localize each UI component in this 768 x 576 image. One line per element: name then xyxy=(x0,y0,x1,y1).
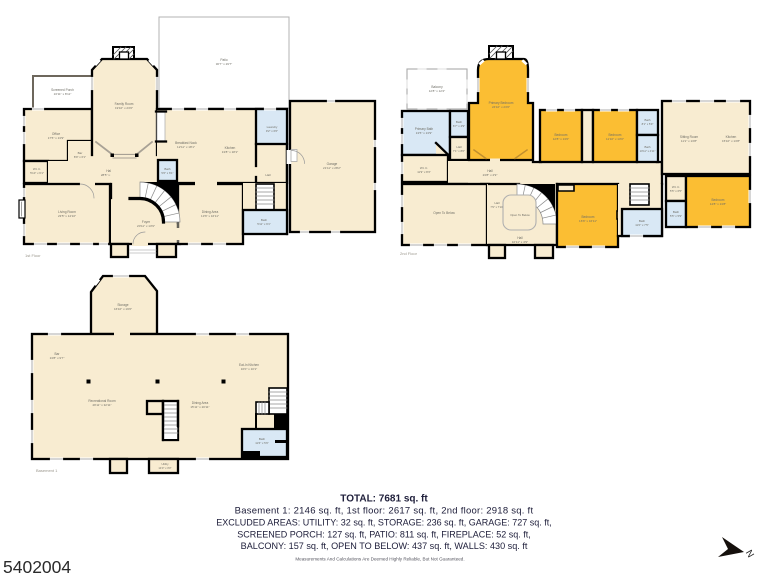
svg-text:20'11" x 13'9": 20'11" x 13'9" xyxy=(137,224,155,228)
svg-text:13'6" x 16'11": 13'6" x 16'11" xyxy=(201,214,219,218)
svg-text:11'1" x 13'8": 11'1" x 13'8" xyxy=(681,139,697,143)
svg-text:Measurements And Calculations: Measurements And Calculations Are Deemed… xyxy=(295,557,464,562)
svg-text:10'11" x 4'11": 10'11" x 4'11" xyxy=(640,149,656,153)
svg-text:Basement 1: 2146 sq. ft, 1st f: Basement 1: 2146 sq. ft, 1st floor: 2617… xyxy=(235,506,534,517)
svg-text:5'5" x 5'9": 5'5" x 5'9" xyxy=(670,214,682,218)
svg-text:Hall: Hall xyxy=(265,173,271,177)
svg-text:12'8" x 13'0": 12'8" x 13'0" xyxy=(553,137,569,141)
svg-text:23'8" x 4'9": 23'8" x 4'9" xyxy=(483,173,498,177)
svg-text:10'11" x 4'9": 10'11" x 4'9" xyxy=(512,240,528,244)
svg-text:9'2" x 6'6": 9'2" x 6'6" xyxy=(266,129,278,133)
svg-text:7'1" x 8'0": 7'1" x 8'0" xyxy=(453,149,465,153)
svg-text:16'11" x 8'11": 16'11" x 8'11" xyxy=(54,92,72,96)
svg-text:EXCLUDED AREAS: UTILITY: 32 sq: EXCLUDED AREAS: UTILITY: 32 sq. ft, STOR… xyxy=(216,518,551,528)
svg-text:16'10" x 19'6": 16'10" x 19'6" xyxy=(114,307,132,311)
svg-text:12'8" x 12'2": 12'8" x 12'2" xyxy=(429,89,445,93)
svg-text:21'11" x 28'2": 21'11" x 28'2" xyxy=(323,166,341,170)
svg-text:30'7" x 29'7": 30'7" x 29'7" xyxy=(216,62,232,66)
svg-text:11'6" x 5'6": 11'6" x 5'6" xyxy=(255,441,269,445)
svg-text:8'9" x 6'1": 8'9" x 6'1" xyxy=(74,155,86,159)
svg-text:5'5" x 6'5": 5'5" x 6'5" xyxy=(670,189,682,193)
svg-text:23'5" x 14'10": 23'5" x 14'10" xyxy=(58,214,76,218)
svg-text:24'10" x 23'0": 24'10" x 23'0" xyxy=(492,105,510,109)
svg-text:19'10" x 23'0": 19'10" x 23'0" xyxy=(115,106,133,110)
svg-text:Utility: Utility xyxy=(161,462,169,466)
svg-text:6'7" x 4'9": 6'7" x 4'9" xyxy=(453,124,465,128)
svg-text:SCREENED PORCH: 127 sq. ft, PA: SCREENED PORCH: 127 sq. ft, PATIO: 811 s… xyxy=(237,530,531,540)
svg-text:5'6" x 6'1": 5'6" x 6'1" xyxy=(161,171,173,175)
svg-text:13'5" x 13'9": 13'5" x 13'9" xyxy=(416,131,432,135)
svg-text:15'11" x 20'11": 15'11" x 20'11" xyxy=(190,405,209,409)
svg-text:Bath: Bath xyxy=(645,145,651,149)
svg-text:Bath: Bath xyxy=(645,118,651,122)
svg-text:5'10" x 6'1": 5'10" x 6'1" xyxy=(30,171,44,175)
svg-text:7'9" x 7'10": 7'9" x 7'10" xyxy=(490,205,503,209)
svg-text:13'8" x 18'1": 13'8" x 18'1" xyxy=(222,150,238,154)
svg-text:Hall: Hall xyxy=(495,201,500,205)
svg-text:2nd Floor: 2nd Floor xyxy=(400,251,418,256)
svg-text:11'10" x 13'0": 11'10" x 13'0" xyxy=(606,137,624,141)
svg-text:TOTAL: 7681 sq. ft: TOTAL: 7681 sq. ft xyxy=(340,494,428,505)
svg-text:16'6" x 16'11": 16'6" x 16'11" xyxy=(579,219,597,223)
svg-text:11'9" x 8'3": 11'9" x 8'3" xyxy=(417,170,431,174)
svg-text:14'8" x 13'8": 14'8" x 13'8" xyxy=(710,202,726,206)
svg-text:14'0" x 3'0": 14'0" x 3'0" xyxy=(158,466,171,470)
svg-text:Basement 1: Basement 1 xyxy=(36,468,58,473)
svg-text:49'11" x 32'11": 49'11" x 32'11" xyxy=(92,403,111,407)
svg-text:11'0" x 7'5": 11'0" x 7'5" xyxy=(635,223,649,227)
svg-text:13'8" x 9'7": 13'8" x 9'7" xyxy=(50,356,65,360)
svg-text:5'11" x 9'1": 5'11" x 9'1" xyxy=(257,222,271,226)
svg-text:Open To Below: Open To Below xyxy=(510,213,530,217)
svg-text:BALCONY: 157 sq. ft, OPEN TO B: BALCONY: 157 sq. ft, OPEN TO BELOW: 437 … xyxy=(241,541,528,551)
svg-text:1st Floor: 1st Floor xyxy=(25,253,41,258)
svg-text:16'0" x 10'1": 16'0" x 10'1" xyxy=(241,367,257,371)
svg-text:Open To Below: Open To Below xyxy=(433,211,455,215)
svg-text:5402004: 5402004 xyxy=(3,557,71,576)
svg-text:15'10" x 13'8": 15'10" x 13'8" xyxy=(722,139,740,143)
svg-text:12'11" x 18'1": 12'11" x 18'1" xyxy=(177,145,195,149)
svg-text:17'5" x 13'9": 17'5" x 13'9" xyxy=(48,136,64,140)
svg-text:8'1" x 5'9": 8'1" x 5'9" xyxy=(642,122,654,126)
